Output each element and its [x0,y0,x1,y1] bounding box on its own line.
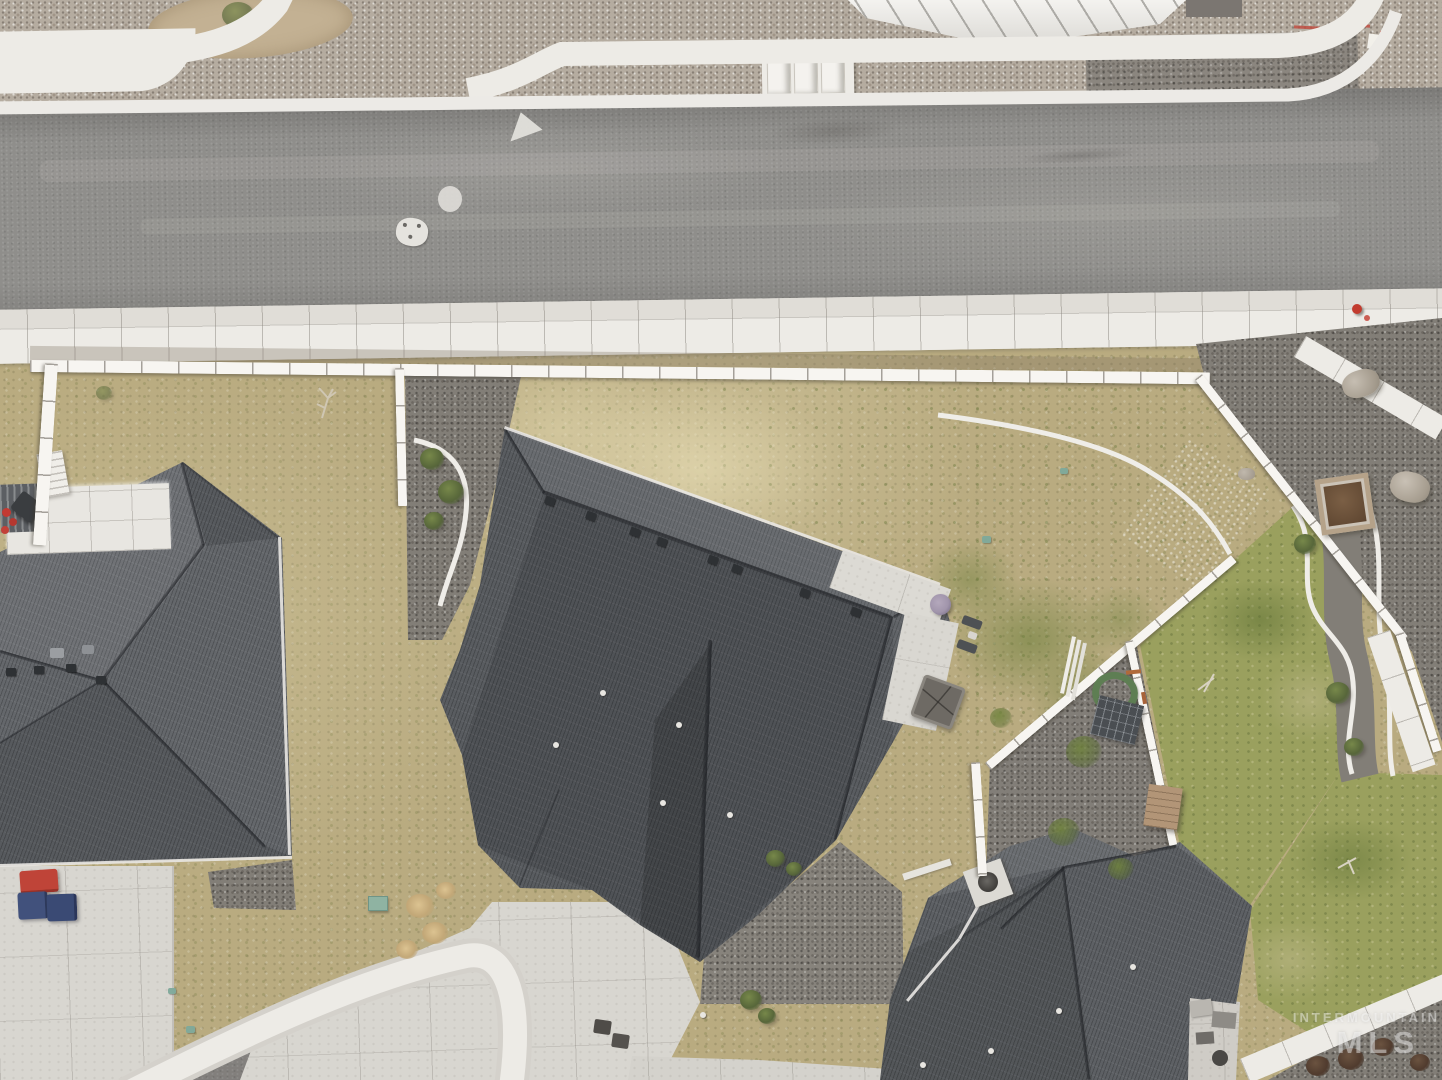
plumbing-vent-cap [1130,964,1136,970]
plumbing-vent-cap [660,800,666,806]
roof-vent [96,676,106,684]
patio-storage-box [1189,999,1213,1018]
weed-patch [1108,858,1134,880]
bed-shrub [1344,738,1364,756]
plumbing-vent-cap [920,1062,926,1068]
patio-storage-box [1196,1031,1215,1044]
landscape-boulder [1238,468,1255,480]
weed-patch [990,708,1012,728]
plumbing-vent-cap [600,690,606,696]
aerial-photo-suburban-neighborhood: INTERMOUNTAIN MLS [0,0,1442,1080]
plumbing-vent-cap [700,1012,706,1018]
planter-soil [1323,482,1366,527]
work-table [1143,784,1183,830]
red-trash-bin [19,869,59,895]
ornamental-grass [436,882,456,899]
plumbing-vent-cap [676,722,682,728]
patio-grill [1212,1050,1228,1066]
red-flower-pot [1,526,9,534]
foundation-bush [758,1008,776,1024]
bed-shrub [1294,534,1316,554]
front-bed-shrub [424,512,444,530]
bed-shrub [1326,682,1350,704]
roof-hvac-unit [50,648,64,658]
front-bed-shrub [420,448,444,470]
roof-hvac-unit [82,645,94,654]
patio-storage-box [1211,1011,1236,1029]
foundation-bush [786,862,802,876]
mls-watermark: INTERMOUNTAIN MLS [1293,1011,1440,1058]
ornamental-grass [396,940,418,959]
red-flower-pot [9,518,17,526]
valve-box-lid [982,536,991,543]
front-bed-shrub [438,480,464,504]
patio-umbrella [930,594,951,615]
watermark-line2: MLS [1293,1027,1420,1058]
wooden-planter-box [1314,473,1375,536]
watermark-line1: INTERMOUNTAIN [1293,1011,1440,1024]
ornamental-grass [422,922,448,944]
weed-patch [1048,818,1080,846]
valve-box-lid [1060,468,1068,474]
valve-box-lid [168,988,176,994]
ornamental-grass [406,894,434,918]
roof-vent [6,668,16,676]
weed-patch [1066,736,1102,768]
roof-vent [66,664,76,672]
yard-bush [96,386,112,400]
foundation-bush [740,990,762,1010]
plumbing-vent-cap [1056,1008,1062,1014]
foundation-bush [766,850,785,867]
plumbing-vent-cap [988,1048,994,1054]
valve-box-lid [186,1026,195,1033]
utility-box-green [368,896,388,911]
roof-vent [34,666,44,674]
red-flower-pot [2,508,11,517]
blue-trash-bin [47,893,78,921]
plumbing-vent-cap [727,812,733,818]
corner-shrub [1306,1056,1330,1076]
plumbing-vent-cap [553,742,559,748]
blue-trash-bin [17,891,48,920]
